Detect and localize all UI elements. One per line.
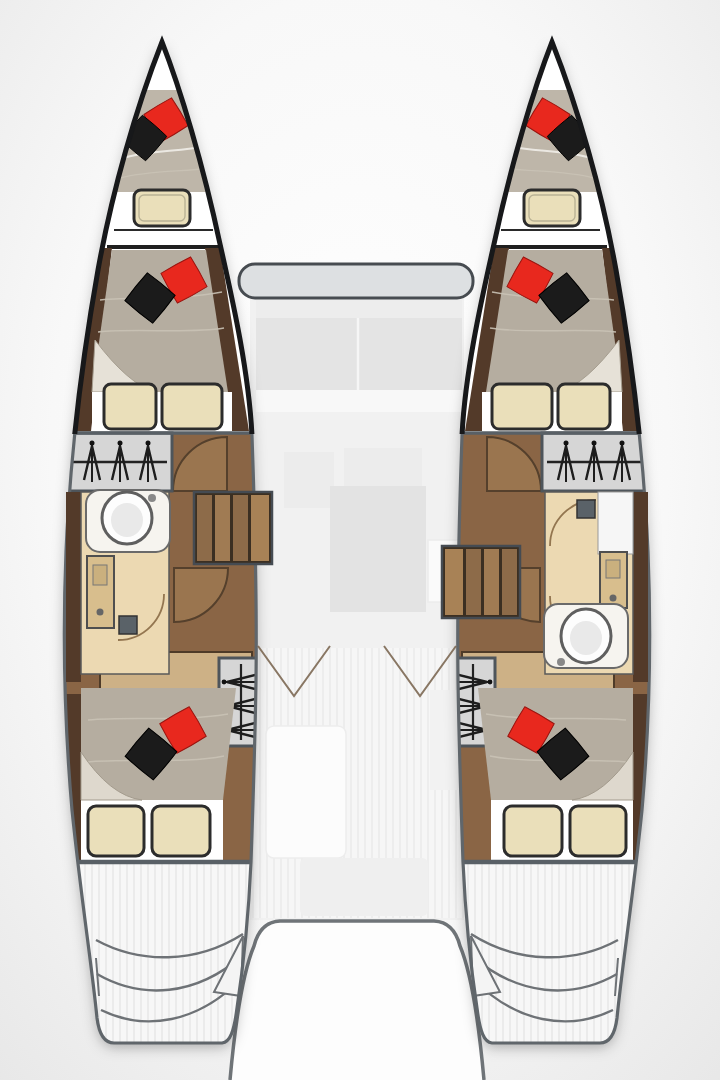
faucet-icon bbox=[557, 658, 565, 666]
bathroom-port bbox=[66, 490, 170, 682]
salon-sofa-ghost bbox=[256, 300, 462, 412]
cockpit-ghost bbox=[252, 648, 464, 918]
aft-cabin bbox=[64, 688, 236, 862]
stern-cutout bbox=[230, 921, 484, 1080]
shower-drain-icon bbox=[577, 500, 595, 518]
bathroom-starboard bbox=[544, 492, 648, 682]
catamaran-floor-plan bbox=[0, 0, 720, 1080]
stairs-starboard bbox=[442, 546, 520, 618]
cream-pillow bbox=[162, 384, 222, 429]
floor-plan-stage bbox=[0, 0, 720, 1080]
hanging-locker bbox=[67, 433, 172, 491]
cream-pillow bbox=[152, 806, 210, 856]
faucet-icon bbox=[148, 494, 156, 502]
stairs-port bbox=[194, 492, 272, 564]
coachroof-front-band bbox=[239, 264, 473, 298]
cream-pillow bbox=[104, 384, 156, 429]
shower-drain-icon bbox=[119, 616, 137, 634]
forward-cabin bbox=[75, 248, 249, 432]
cream-pillow bbox=[88, 806, 144, 856]
cabinet bbox=[598, 492, 633, 554]
